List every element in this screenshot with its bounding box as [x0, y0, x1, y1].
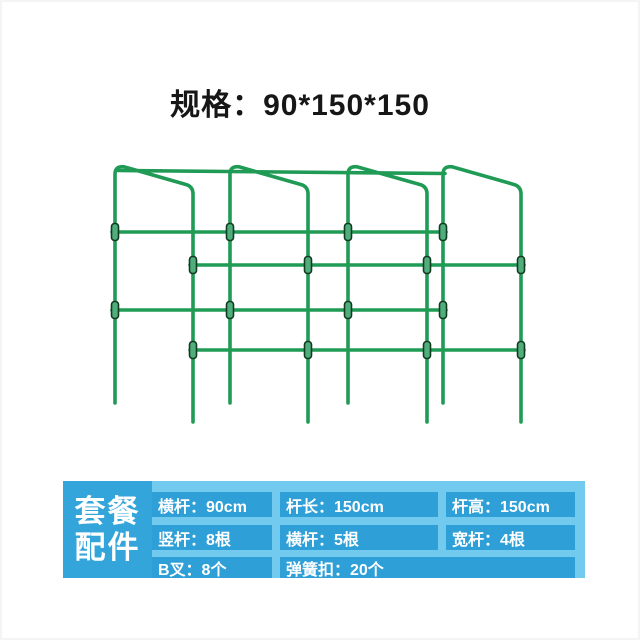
- spring-clip-icon: [112, 302, 119, 319]
- spec-table: 横杆：90cm 杆长：150cm 杆高：150cm 竖杆：8根 横杆：5根 宽杆…: [152, 481, 585, 578]
- spring-clip-icon: [305, 257, 312, 274]
- spring-clip-icon: [345, 302, 352, 319]
- top-crossbar: [118, 171, 445, 174]
- spring-clip-icon: [227, 302, 234, 319]
- package-label: 套餐 配件: [63, 481, 152, 578]
- spring-clip-icon: [424, 257, 431, 274]
- package-panel: 套餐 配件 横杆：90cm 杆长：150cm 杆高：150cm 竖杆：8根 横杆…: [63, 481, 585, 578]
- spec-cell-gangao-150: 杆高：150cm: [446, 492, 575, 517]
- spec-cell-kuangan-4: 宽杆：4根: [446, 525, 575, 550]
- spring-clip-icon: [345, 224, 352, 241]
- spring-clip-icon: [190, 257, 197, 274]
- spring-clip-icon: [518, 342, 525, 359]
- crossbars: [112, 171, 524, 351]
- product-image: 规格：90*150*150: [0, 0, 640, 640]
- trellis-frames: [115, 167, 521, 422]
- spring-clip-icon: [424, 342, 431, 359]
- spec-cell-shugan-8: 竖杆：8根: [152, 525, 272, 550]
- spec-row-1: 横杆：90cm 杆长：150cm 杆高：150cm: [152, 492, 575, 517]
- u-frame-1: [115, 167, 193, 422]
- spec-row-3: B叉：8个 弹簧扣：20个: [152, 557, 575, 578]
- spring-clip-icon: [112, 224, 119, 241]
- spring-clip-icon: [227, 224, 234, 241]
- spec-cell-ganchang-150: 杆长：150cm: [280, 492, 438, 517]
- spring-clip-icon: [305, 342, 312, 359]
- package-label-line1: 套餐: [75, 494, 141, 530]
- spring-clips: [112, 224, 525, 359]
- spring-clip-icon: [190, 342, 197, 359]
- spec-row-2: 竖杆：8根 横杆：5根 宽杆：4根: [152, 525, 575, 550]
- u-frame-2: [230, 167, 308, 422]
- u-frame-3: [348, 167, 427, 422]
- spring-clip-icon: [440, 224, 447, 241]
- u-frame-4: [443, 167, 521, 422]
- spec-cell-tanhuangkou-20: 弹簧扣：20个: [280, 557, 575, 578]
- package-label-line2: 配件: [75, 530, 141, 566]
- spec-cell-henggan-5: 横杆：5根: [280, 525, 438, 550]
- spring-clip-icon: [440, 302, 447, 319]
- spring-clip-icon: [518, 257, 525, 274]
- spec-cell-hengan-90: 横杆：90cm: [152, 492, 272, 517]
- spec-cell-bcha-8: B叉：8个: [152, 557, 272, 578]
